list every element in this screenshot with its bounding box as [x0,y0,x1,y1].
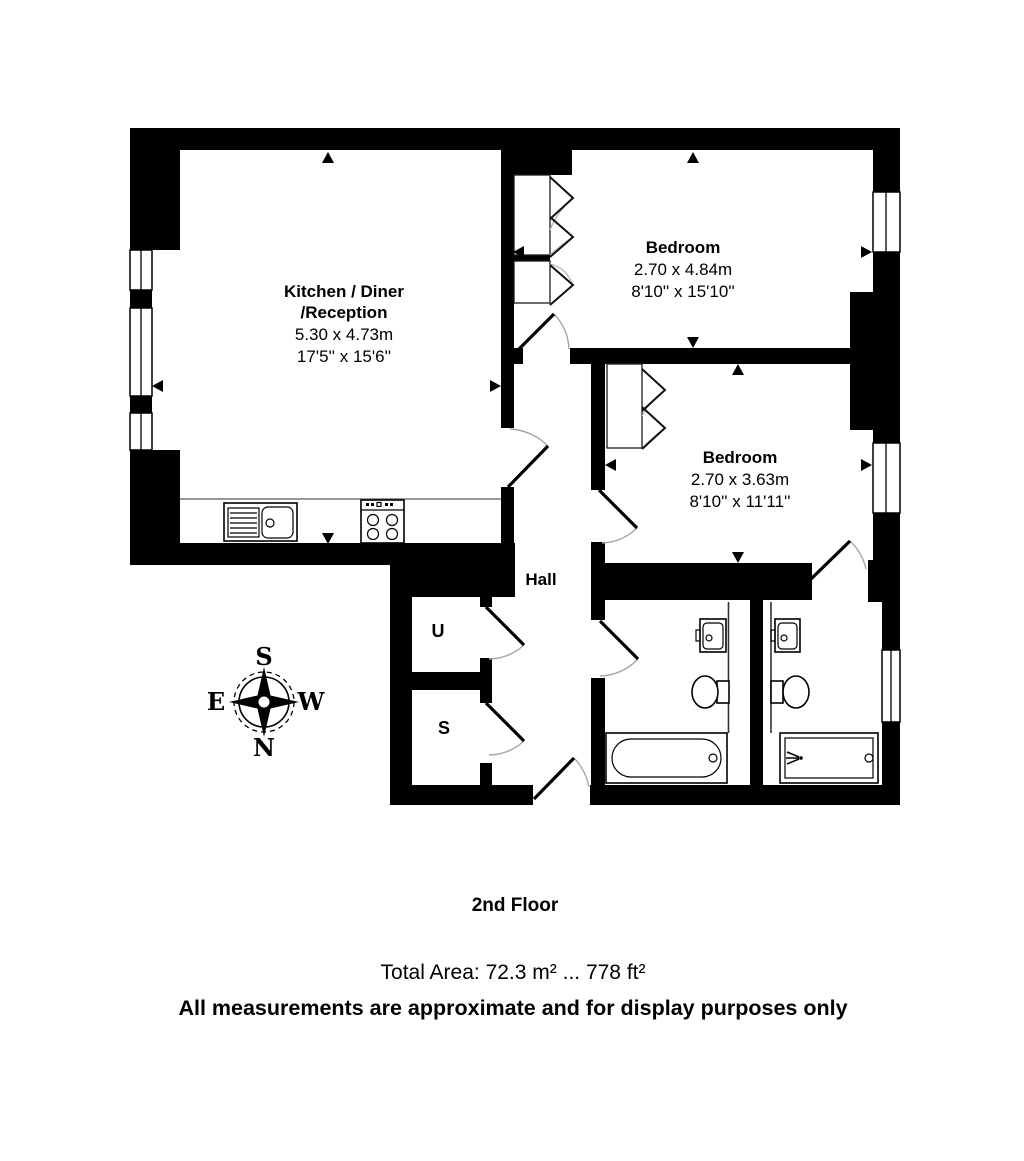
window [130,250,152,290]
wall-segment [868,560,900,602]
bathroom2-toilet-icon [771,676,809,708]
floor-plan: S E W N Kitchen / Diner /Reception 5.30 … [0,0,1024,1161]
hall-closet-lower [514,261,550,303]
kitchen-sink-icon [224,503,297,541]
wall-segment [873,513,900,560]
wall-segment [480,763,492,785]
wall-segment [501,150,514,428]
bedroom2-dims-metric: 2.70 x 3.63m [691,470,789,489]
kitchen-dims-imperial: 17'5'' x 15'6'' [297,347,391,366]
arrow-right-icon [861,459,872,471]
cupboard-u-door [486,607,524,659]
kitchen-label-line2: /Reception [301,303,388,322]
wall-segment [480,690,492,703]
bedroom1-dims-metric: 2.70 x 4.84m [634,260,732,279]
window [873,192,900,252]
arrow-left-icon [605,459,616,471]
kitchen-door [508,429,548,487]
wall-segment [882,602,900,650]
window [882,650,900,722]
footer: 2nd Floor Total Area: 72.3 m² ... 778 ft… [178,895,847,1020]
window [130,308,152,396]
wall-segment [130,128,900,150]
arrow-down-icon [687,337,699,348]
window [130,413,152,450]
cupboard-s-door [486,703,524,755]
hall-closet-upper [514,175,550,255]
compass-rose: S E W N [207,642,326,762]
wall-segment [480,597,492,607]
bifold-door-icon [642,369,665,411]
arrow-up-icon [687,152,699,163]
bathroom-fixtures [606,602,878,783]
wall-segment [591,563,812,600]
bedroom2-door [599,490,637,543]
wall-segment [590,785,900,805]
kitchen-label: Kitchen / Diner [284,282,404,301]
bifold-door-icon [642,407,665,449]
bifold-door-icon [550,177,573,219]
wall-segment [130,396,152,413]
arrow-up-icon [732,364,744,375]
bedroom2-dims-imperial: 8'10'' x 11'11'' [689,492,790,511]
wall-segment [390,672,492,690]
wall-segment [591,364,605,490]
wall-segment [480,658,492,672]
wall-segment [873,252,900,443]
bedroom2-wardrobe [607,364,642,448]
compass-west: W [297,687,326,716]
wall-segment [130,128,180,250]
cupboard-s-label: S [438,718,450,738]
bathtub-icon [606,733,727,783]
cupboard-u-label: U [432,621,445,641]
floor-title: 2nd Floor [472,895,559,916]
bathroom1-door [600,621,638,676]
kitchen-dims-metric: 5.30 x 4.73m [295,325,393,344]
arrow-down-icon [732,552,744,563]
bedroom1-door [516,314,569,352]
hall-label: Hall [525,570,556,589]
kitchen-fixtures [180,499,501,543]
bedroom2-label: Bedroom [703,448,778,467]
floorplan-page: S E W N Kitchen / Diner /Reception 5.30 … [0,0,1024,1161]
ensuite-bathroom-door [811,541,866,579]
arrow-right-icon [861,246,872,258]
compass-south: S [255,642,272,671]
bedroom1-dims-imperial: 8'10'' x 15'10'' [631,282,735,301]
arrow-right-icon [490,380,501,392]
bifold-door-icon [550,265,573,305]
bathroom1-toilet-icon [692,676,729,708]
doors [486,314,866,799]
shower-bath-icon [780,733,878,783]
entrance-door [534,758,589,799]
bedroom1-label: Bedroom [646,238,721,257]
bathroom2-basin-icon [771,619,800,652]
wall-segment [882,722,900,785]
wall-segment [570,348,873,364]
wall-segment [513,150,572,175]
arrow-down-icon [322,533,334,544]
compass-north: N [253,733,275,762]
compass-east: E [207,687,225,716]
wall-segment [130,290,152,308]
arrow-left-icon [152,380,163,392]
wall-segment [850,292,873,430]
window [873,443,900,513]
wall-segment [501,487,514,565]
closets [514,175,665,449]
bathroom1-basin-icon [696,619,726,652]
stove-hob-icon [361,500,404,543]
wall-segment [501,255,550,261]
arrow-up-icon [322,152,334,163]
total-area-text: Total Area: 72.3 m² ... 778 ft² [381,961,646,984]
wall-segment [750,598,763,805]
wall-segment [390,785,533,805]
disclaimer-text: All measurements are approximate and for… [178,996,847,1020]
room-labels: Kitchen / Diner /Reception 5.30 x 4.73m … [284,238,791,738]
wall-segment [873,128,900,192]
